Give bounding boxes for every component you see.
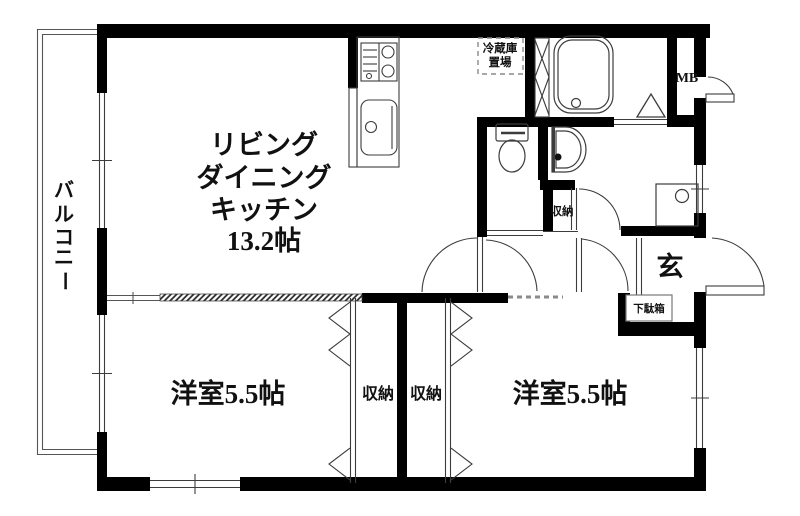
door-swing-arc — [486, 240, 537, 291]
window-washroom-right — [691, 165, 709, 213]
meter-box-label: MB — [676, 71, 699, 86]
interior-walls — [348, 24, 706, 491]
svg-text:バ: バ — [54, 179, 74, 202]
door-leaf — [706, 94, 734, 102]
ldk-label-line4: 13.2帖 — [227, 226, 301, 256]
svg-text:コ: コ — [54, 227, 74, 249]
ldk-label-line2: ダイニング — [197, 162, 332, 193]
ldk-label-line1: リビング — [210, 129, 318, 160]
wall-closet-divider — [397, 297, 407, 491]
partition-opening-lines — [107, 292, 160, 304]
accordion-door-zigzag — [451, 448, 472, 480]
window-bottom — [150, 474, 240, 494]
closet-right-label: 収納 — [410, 384, 442, 403]
refrigerator-label-line1: 冷蔵庫 — [483, 41, 518, 55]
door-swing-arc — [422, 238, 477, 292]
window-ldk-balcony — [92, 93, 112, 228]
door-swing-arc — [579, 189, 620, 230]
wall-toilet-right — [538, 117, 548, 180]
wall-bottom-seg1 — [97, 477, 150, 491]
entrance-door — [706, 238, 764, 295]
hall-closet-label: 収納 — [551, 204, 574, 218]
wall-genkan-bottom — [618, 322, 706, 336]
floorplan-drawing: リビング ダイニング キッチン 13.2帖 洋室5.5帖 洋室5.5帖 収納 収… — [0, 0, 800, 516]
accordion-door-zigzag — [451, 302, 472, 366]
floorplan: リビング ダイニング キッチン 13.2帖 洋室5.5帖 洋室5.5帖 収納 収… — [0, 0, 800, 516]
pipe-shaft-icon — [535, 38, 549, 117]
refrigerator-label-line2: 置場 — [489, 55, 512, 69]
accordion-door-zigzag — [329, 302, 350, 366]
door-swing-arc — [708, 77, 733, 94]
bedroom-right-label: 洋室5.5帖 — [513, 378, 628, 409]
wall-right-seg2 — [694, 98, 706, 165]
wall-toilet-top — [477, 117, 548, 127]
svg-text:ー: ー — [53, 271, 75, 291]
closet-left-label: 収納 — [362, 384, 394, 403]
stove-icon — [361, 43, 397, 81]
wall-right-seg4 — [694, 292, 706, 348]
wall-ldk-shaft — [525, 38, 535, 120]
wall-right-seg5 — [694, 448, 706, 491]
ldk-hall-door — [422, 237, 537, 292]
wall-left-seg1 — [97, 24, 107, 93]
wall-bath-bottom — [548, 117, 614, 127]
toilet-icon — [496, 124, 528, 172]
shoe-cabinet-label: 下駄箱 — [633, 302, 665, 315]
entrance-label: 玄 — [657, 251, 684, 282]
balcony-label: バ ル コ ニ ー — [53, 179, 75, 291]
mb-door — [706, 77, 734, 102]
washing-machine-pan-icon — [656, 184, 698, 226]
door-swing-arc — [582, 239, 628, 291]
wall-mb-bottom — [667, 115, 706, 127]
bedroom-right-door — [577, 238, 629, 292]
wall-top — [97, 24, 710, 38]
window-bedroomleft-balcony — [92, 315, 112, 432]
washbasin-icon — [552, 127, 586, 172]
bathtub-icon — [554, 36, 613, 113]
wall-left-seg2 — [97, 228, 107, 315]
accordion-door-zigzag — [329, 448, 350, 480]
toilet-door-lines — [487, 231, 543, 236]
svg-text:ル: ル — [54, 204, 74, 226]
window-bedroomright-right — [691, 348, 709, 448]
entrance-step — [637, 238, 642, 295]
wall-bottom-seg2 — [240, 477, 706, 491]
kitchen-counter — [349, 37, 399, 167]
bath-folding-door-icon — [614, 94, 667, 125]
labels: リビング ダイニング キッチン 13.2帖 洋室5.5帖 洋室5.5帖 収納 収… — [53, 41, 698, 409]
wall-toilet-left — [477, 117, 487, 237]
door-swing-arc — [712, 238, 764, 286]
svg-text:ニ: ニ — [54, 247, 74, 269]
kitchen-sink-icon — [361, 100, 397, 155]
bedroom-left-label: 洋室5.5帖 — [171, 378, 286, 409]
hatched-partition-band — [160, 294, 362, 301]
wall-right-seg1 — [694, 24, 706, 77]
ldk-label-line3: キッチン — [210, 195, 318, 225]
wall-ldk-bedroom — [362, 293, 508, 303]
wall-washroom-bottom — [621, 226, 706, 236]
door-leaf — [706, 286, 764, 295]
